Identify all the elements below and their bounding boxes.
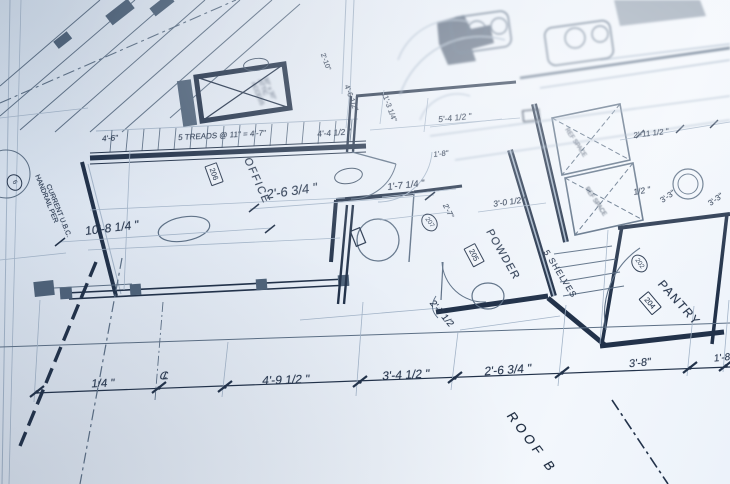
dim-label-tiny: 1'-8": [433, 149, 448, 159]
dim-label-bottom: 1/4 ": [91, 378, 116, 391]
dim-label-bottom: 3'-4 1/2 ": [382, 367, 431, 382]
plan-linework: [0, 0, 730, 484]
dim-label-bottom: 4'-9 1/2 ": [262, 373, 311, 387]
construction-lines: [0, 88, 730, 347]
kitchen-blurred: [398, 0, 730, 160]
ref-space-boxes: [552, 104, 643, 235]
blueprint-photo: 4'-6" 5 TREADS @ 11" = 4'-7" 4'-4 1/2 " …: [0, 0, 730, 484]
dim-label-bottom: 1'-8: [714, 353, 730, 365]
dim-label-stair-left: 4'-6": [102, 134, 119, 143]
dim-label-bottom: 3'-8": [629, 357, 652, 371]
